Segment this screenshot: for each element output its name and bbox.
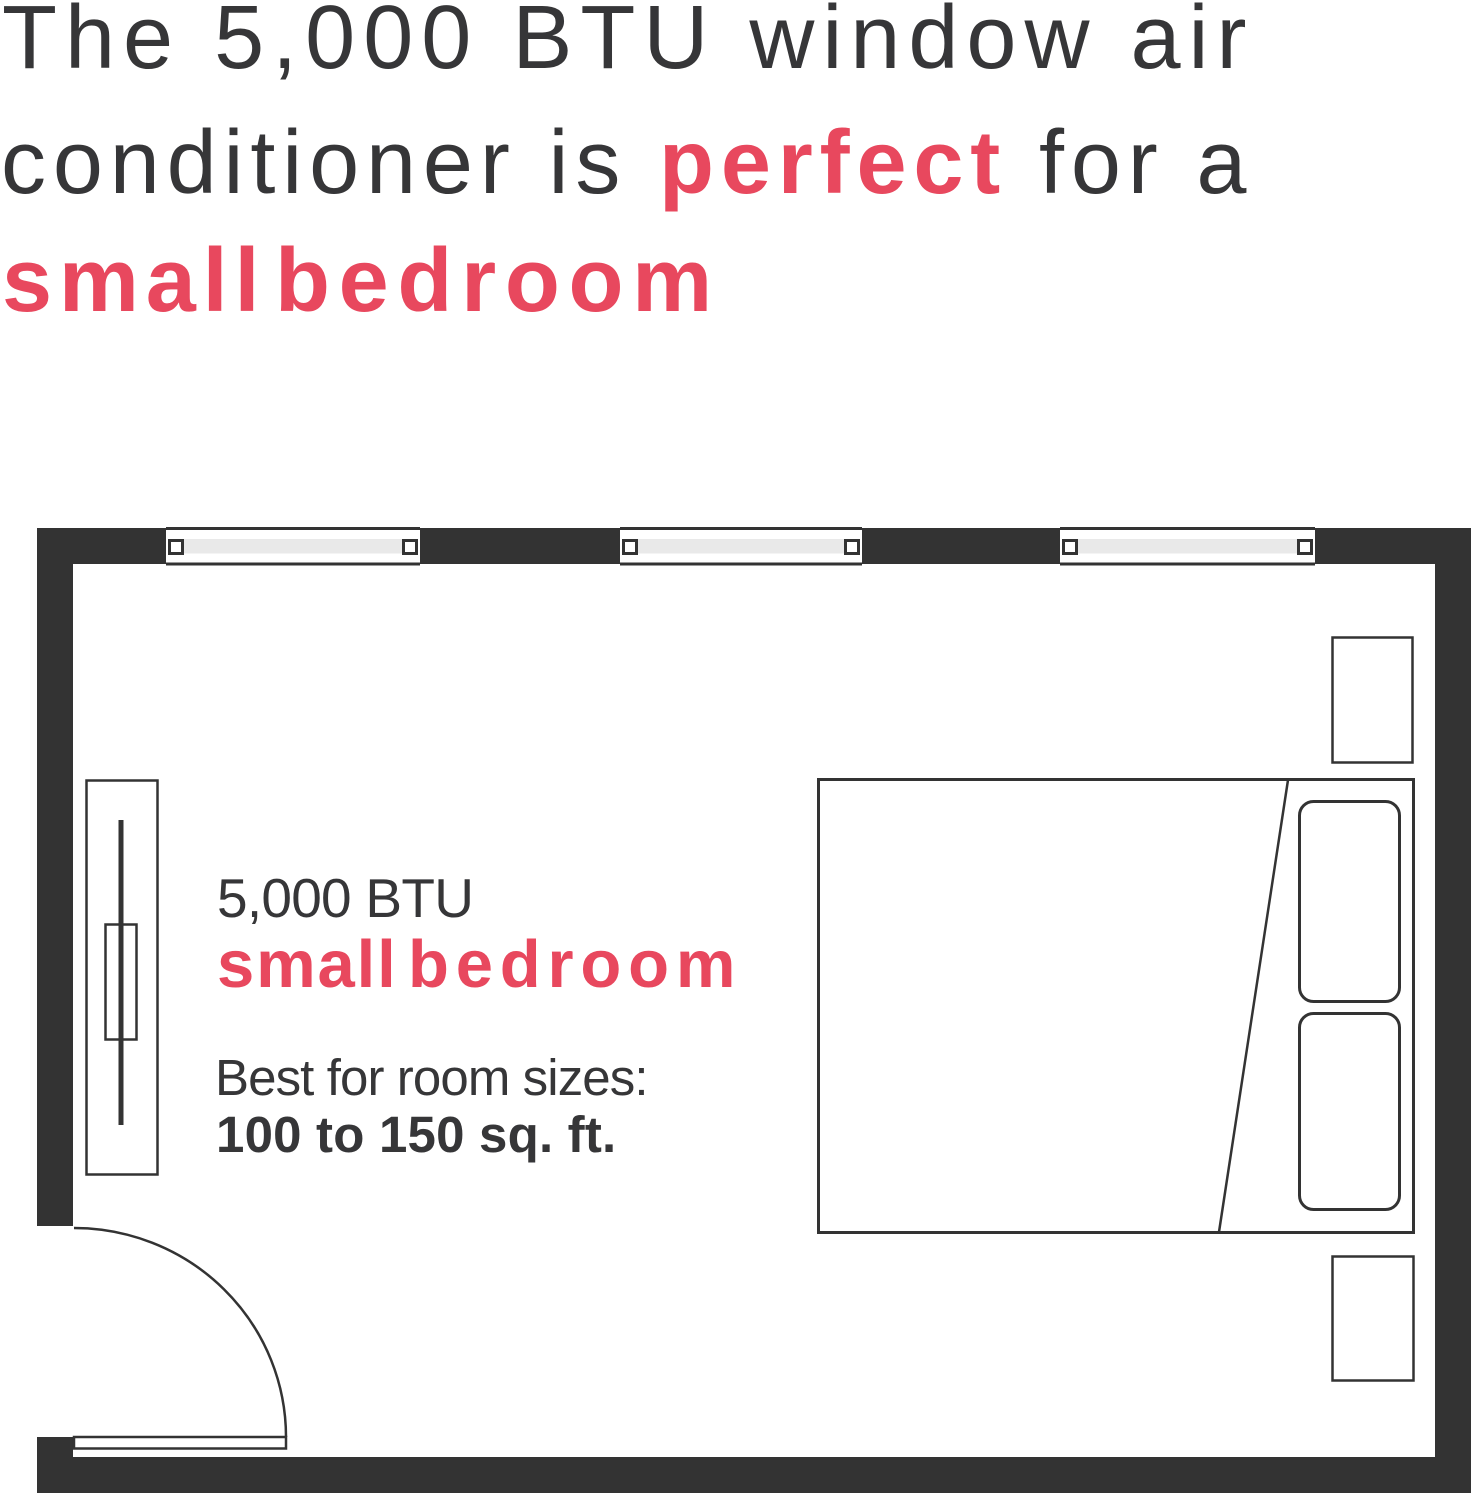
svg-text:smallbedroom: smallbedroom <box>2 231 721 331</box>
svg-text:conditioner is perfect for a: conditioner is perfect for a <box>1 113 1253 213</box>
svg-text:The 5,000 BTU window air: The 5,000 BTU window air <box>2 0 1255 88</box>
svg-text:100 to 150 sq. ft.: 100 to 150 sq. ft. <box>216 1106 616 1163</box>
svg-text:5,000 BTU: 5,000 BTU <box>217 867 473 929</box>
svg-text:Best for room sizes:: Best for room sizes: <box>215 1049 648 1106</box>
svg-text:smallbedroom: smallbedroom <box>217 927 742 1002</box>
